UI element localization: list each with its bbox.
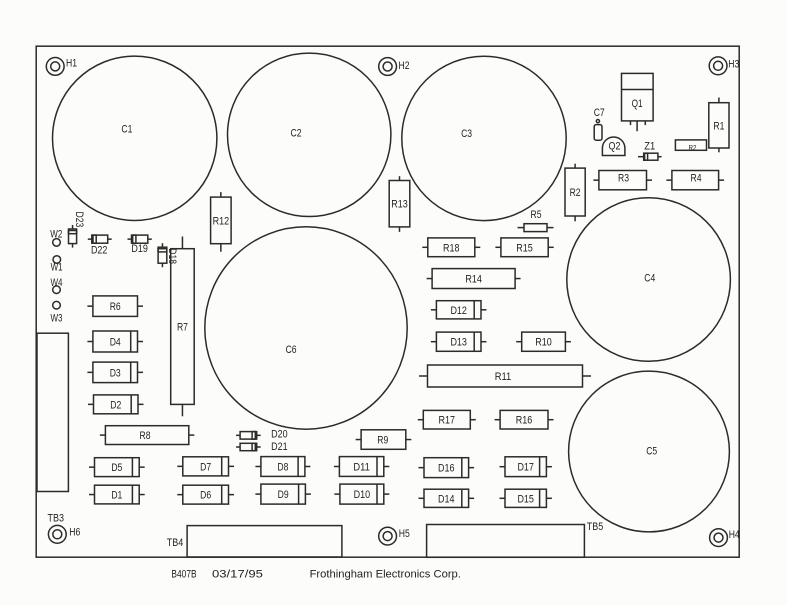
svg-text:W4: W4 xyxy=(51,277,63,289)
svg-text:R17: R17 xyxy=(439,415,456,427)
svg-text:D2: D2 xyxy=(110,399,121,411)
svg-text:D13: D13 xyxy=(450,337,467,349)
svg-text:D7: D7 xyxy=(200,461,211,473)
svg-text:R10: R10 xyxy=(535,337,552,349)
svg-text:Q1: Q1 xyxy=(632,98,643,110)
svg-text:R16: R16 xyxy=(516,415,533,427)
svg-text:B407B: B407B xyxy=(171,568,196,580)
svg-text:D17: D17 xyxy=(517,462,534,474)
svg-text:D11: D11 xyxy=(353,462,370,474)
svg-text:03/17/95: 03/17/95 xyxy=(212,568,263,580)
svg-text:D3: D3 xyxy=(110,367,121,379)
svg-text:R4: R4 xyxy=(691,173,702,185)
svg-text:D4: D4 xyxy=(110,337,121,349)
svg-text:D16: D16 xyxy=(438,463,455,475)
svg-text:H2: H2 xyxy=(399,60,410,72)
svg-text:TB3: TB3 xyxy=(48,513,65,525)
svg-text:D19: D19 xyxy=(131,243,148,255)
svg-text:R6: R6 xyxy=(110,301,121,313)
svg-text:R5: R5 xyxy=(531,209,542,221)
svg-text:D22: D22 xyxy=(91,244,108,256)
svg-text:R12: R12 xyxy=(213,215,230,227)
svg-text:R13: R13 xyxy=(391,199,408,211)
svg-text:H5: H5 xyxy=(399,528,410,540)
svg-text:R1: R1 xyxy=(713,120,724,132)
svg-text:W2: W2 xyxy=(50,229,62,241)
svg-text:Q2: Q2 xyxy=(609,140,621,152)
svg-text:D9: D9 xyxy=(278,489,289,501)
svg-text:W1: W1 xyxy=(51,261,63,273)
svg-text:H3: H3 xyxy=(728,58,739,70)
svg-text:D6: D6 xyxy=(200,490,211,502)
svg-text:D1: D1 xyxy=(111,490,122,502)
svg-text:C1: C1 xyxy=(121,124,132,136)
svg-text:D10: D10 xyxy=(354,489,371,501)
svg-text:TB5: TB5 xyxy=(587,521,604,533)
svg-text:Frothingham Electronics Corp.: Frothingham Electronics Corp. xyxy=(310,568,461,580)
svg-text:C6: C6 xyxy=(286,344,297,356)
svg-text:H1: H1 xyxy=(66,58,77,70)
svg-text:TB4: TB4 xyxy=(167,537,184,549)
svg-text:R18: R18 xyxy=(443,242,460,254)
svg-text:W3: W3 xyxy=(51,312,63,324)
svg-text:R11: R11 xyxy=(495,371,512,383)
svg-text:D8: D8 xyxy=(277,462,288,474)
svg-text:C5: C5 xyxy=(646,445,657,457)
svg-text:D15: D15 xyxy=(517,493,534,505)
svg-text:R2: R2 xyxy=(570,187,581,199)
svg-text:D12: D12 xyxy=(450,305,467,317)
svg-text:C7: C7 xyxy=(594,107,605,119)
svg-text:H4: H4 xyxy=(729,529,740,541)
svg-text:Z1: Z1 xyxy=(644,140,655,152)
svg-text:R3: R3 xyxy=(618,173,629,185)
svg-text:D14: D14 xyxy=(438,493,455,505)
svg-text:D21: D21 xyxy=(271,441,288,453)
svg-text:C4: C4 xyxy=(644,273,655,285)
svg-text:R8: R8 xyxy=(140,430,151,442)
svg-text:D20: D20 xyxy=(271,429,288,441)
svg-text:R14: R14 xyxy=(465,274,482,286)
svg-text:R7: R7 xyxy=(177,322,188,334)
svg-text:R2: R2 xyxy=(689,145,697,152)
svg-text:D23: D23 xyxy=(73,212,85,228)
svg-text:R9: R9 xyxy=(377,435,388,447)
svg-text:D18: D18 xyxy=(166,248,178,264)
svg-text:C3: C3 xyxy=(461,128,472,140)
svg-text:H6: H6 xyxy=(69,527,80,539)
svg-text:D5: D5 xyxy=(111,462,122,474)
svg-text:R15: R15 xyxy=(516,242,533,254)
svg-text:C2: C2 xyxy=(291,127,302,139)
